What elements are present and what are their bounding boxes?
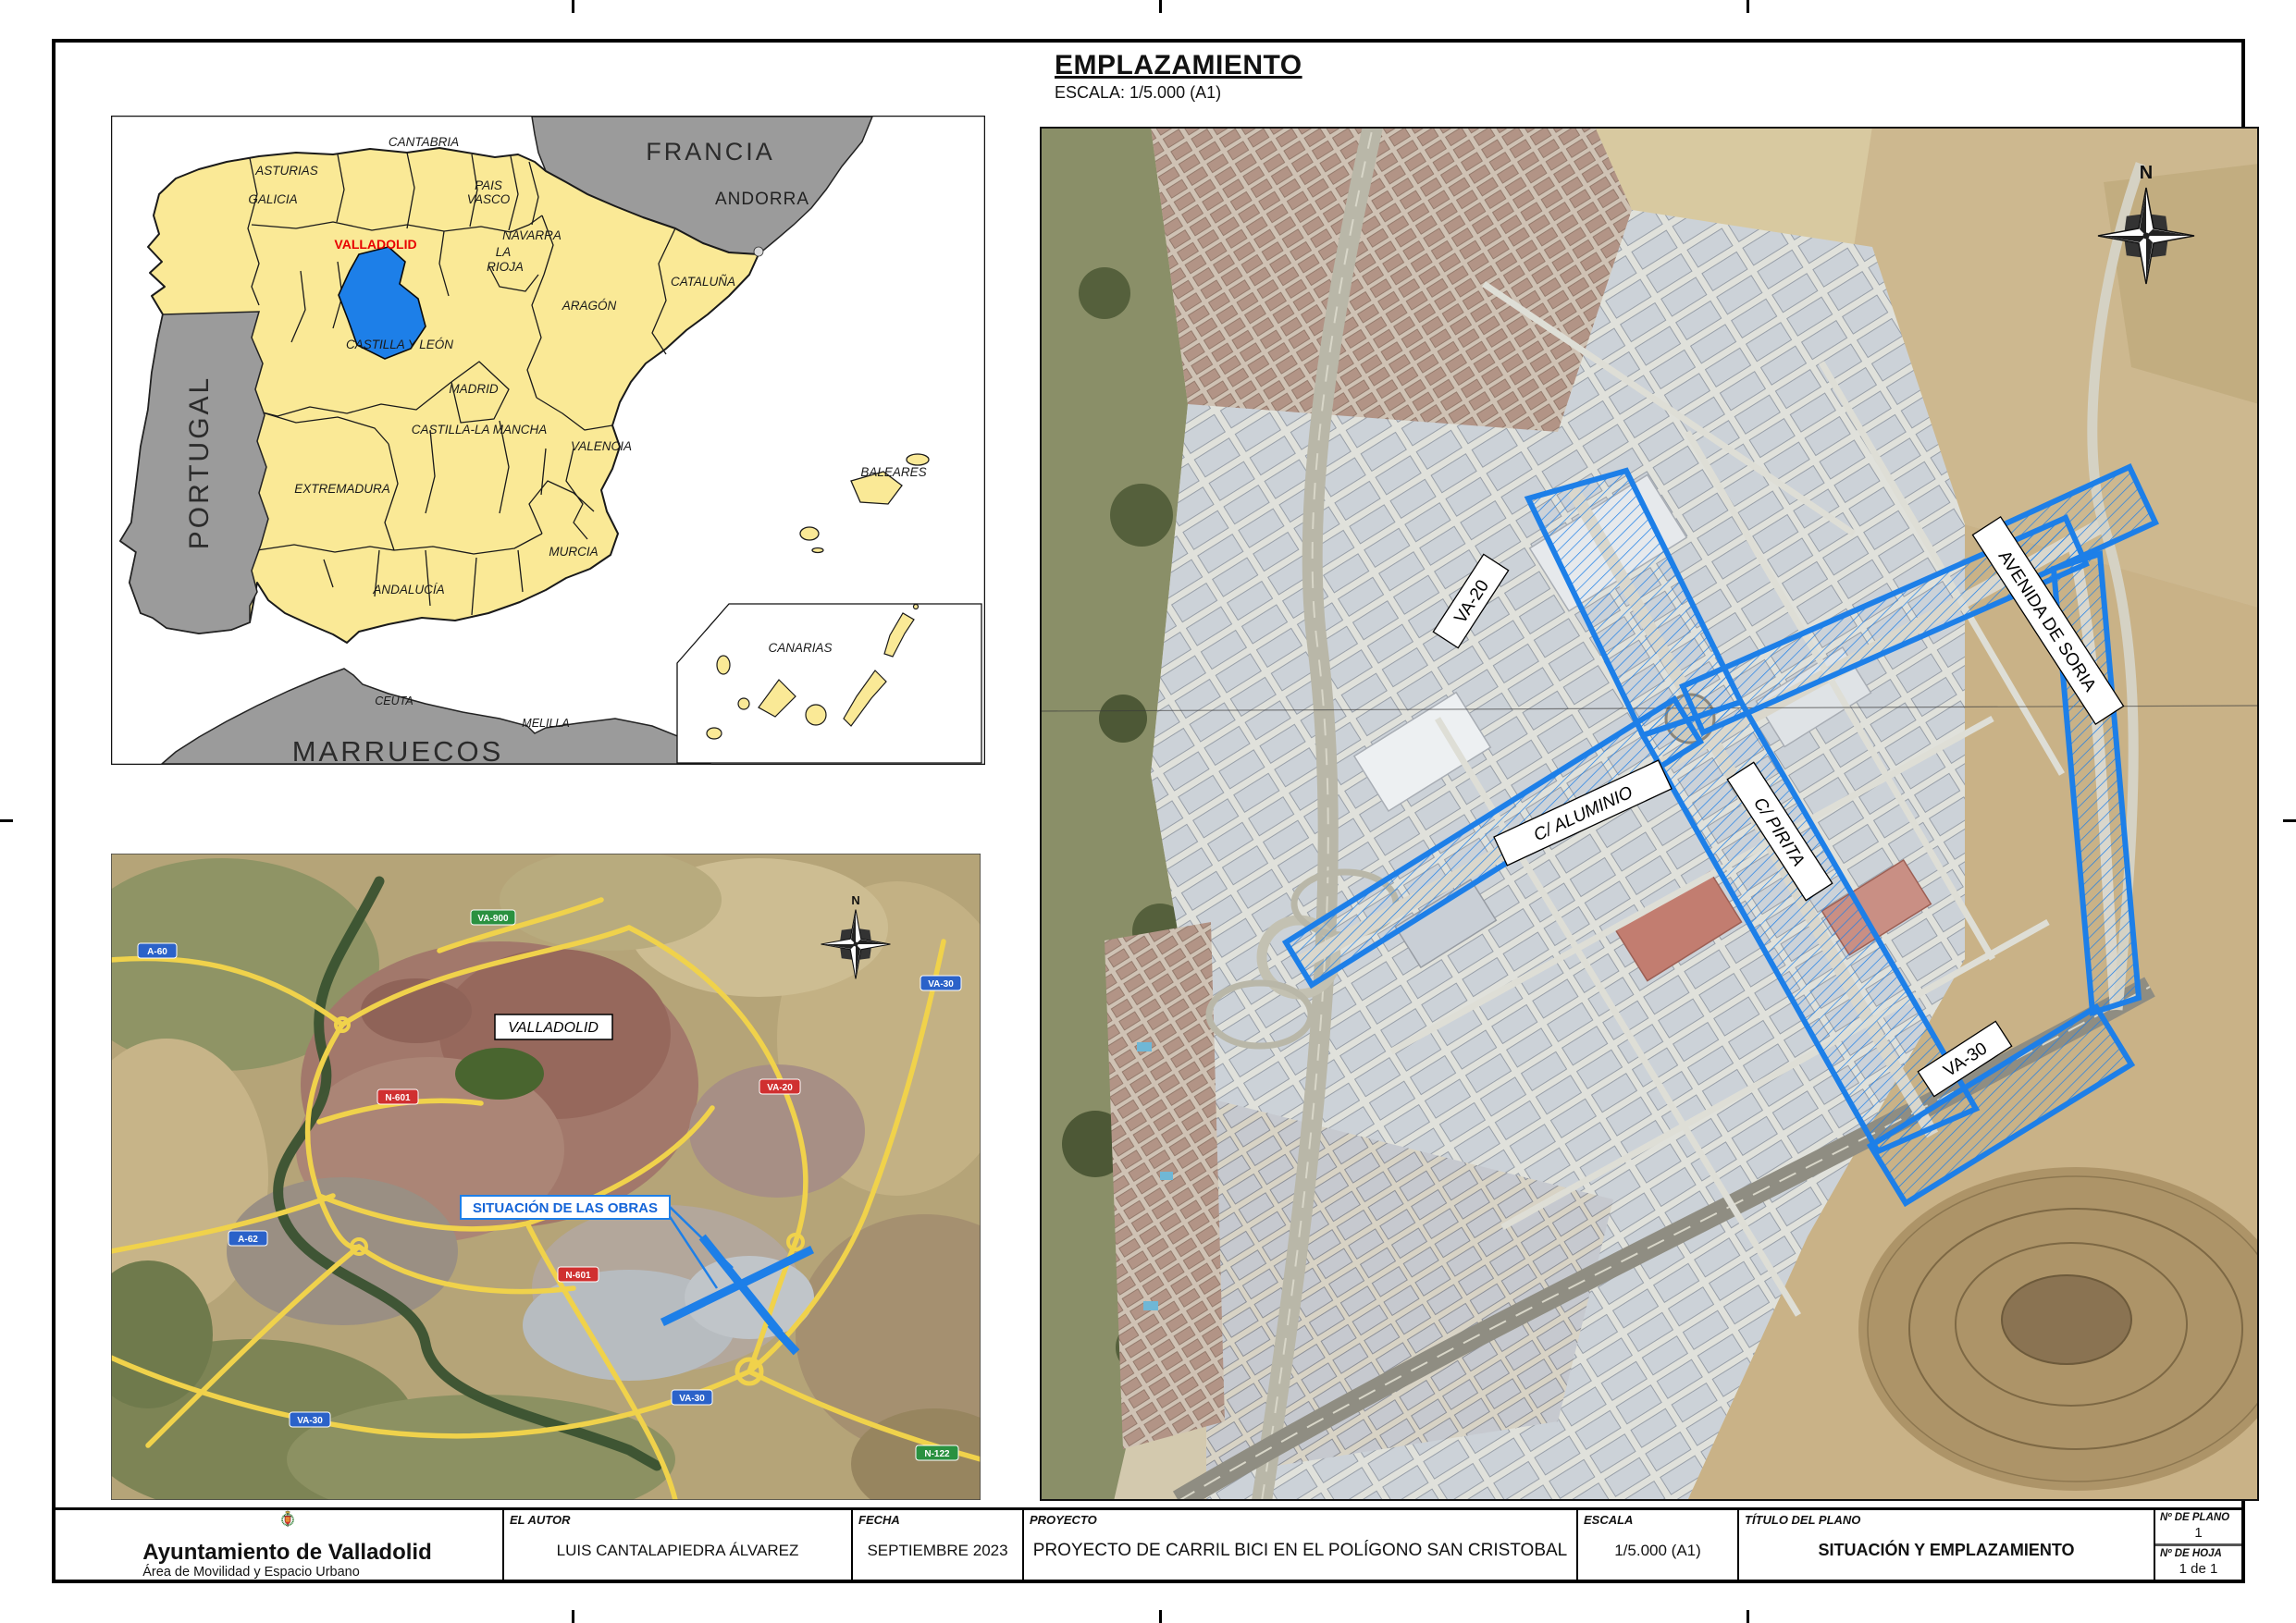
project-value: PROYECTO DE CARRIL BICI EN EL POLÍGONO S… bbox=[1024, 1527, 1576, 1580]
site-compass-n-label: N bbox=[2140, 163, 2153, 183]
label-madrid: MADRID bbox=[449, 382, 498, 396]
label-marruecos: MARRUECOS bbox=[292, 735, 504, 765]
scale-value: 1/5.000 (A1) bbox=[1578, 1527, 1737, 1580]
label-francia: FRANCIA bbox=[646, 138, 775, 166]
plan-title-label: TÍTULO DEL PLANO bbox=[1739, 1510, 2154, 1527]
cropmark-top-2 bbox=[1159, 0, 1162, 13]
road-shield-n601-b: N-601 bbox=[565, 1271, 591, 1281]
road-shield-va30-c: VA-30 bbox=[679, 1394, 705, 1404]
city-label: VALLADOLID bbox=[508, 1020, 599, 1036]
title-block-project-cell: PROYECTO PROYECTO DE CARRIL BICI EN EL P… bbox=[1022, 1510, 1576, 1580]
title-block-org-cell: Ayuntamiento de Valladolid Área de Movil… bbox=[56, 1510, 502, 1580]
canarias-inset-box bbox=[677, 604, 981, 763]
label-valladolid-province: VALLADOLID bbox=[334, 237, 416, 252]
scale-label: ESCALA bbox=[1578, 1510, 1737, 1527]
date-value: SEPTIEMBRE 2023 bbox=[853, 1527, 1022, 1580]
cropmark-bottom-2 bbox=[1159, 1610, 1162, 1623]
label-extremadura: EXTREMADURA bbox=[294, 482, 390, 496]
apartment-strip bbox=[1105, 922, 1225, 1449]
title-block-scale-cell: ESCALA 1/5.000 (A1) bbox=[1576, 1510, 1737, 1580]
road-shield-va900: VA-900 bbox=[477, 914, 509, 924]
plan-sheet: { "site_map": { "title": "EMPLAZAMIENTO"… bbox=[0, 0, 2296, 1623]
date-label: FECHA bbox=[853, 1510, 1022, 1527]
label-castilla-mancha: CASTILLA-LA MANCHA bbox=[412, 423, 548, 436]
cropmark-top-3 bbox=[1747, 0, 1749, 13]
road-shield-va30-a: VA-30 bbox=[928, 979, 954, 990]
plan-number-subcell: Nº DE PLANO 1 bbox=[2155, 1510, 2241, 1543]
city-compass-n-label: N bbox=[851, 893, 859, 907]
org-dept: Área de Movilidad y Espacio Urbano bbox=[142, 1565, 432, 1580]
label-vasco: VASCO bbox=[467, 192, 511, 206]
label-pais: PAIS bbox=[475, 178, 502, 192]
plan-no-label: Nº DE PLANO bbox=[2155, 1510, 2241, 1523]
road-shield-a60: A-60 bbox=[147, 947, 167, 957]
label-navarra: NAVARRA bbox=[502, 228, 562, 242]
emplazamiento-scale: ESCALA: 1/5.000 (A1) bbox=[1055, 83, 1302, 103]
title-block-numbers-cell: Nº DE PLANO 1 Nº DE HOJA 1 de 1 bbox=[2154, 1510, 2241, 1580]
emplazamiento-heading: EMPLAZAMIENTO ESCALA: 1/5.000 (A1) bbox=[1055, 50, 1302, 103]
cropmark-top-1 bbox=[572, 0, 574, 13]
spain-map: FRANCIA MARRUECOS PORTUGAL ANDORRA GALIC… bbox=[111, 116, 985, 765]
label-baleares: BALEARES bbox=[860, 465, 926, 479]
label-portugal: PORTUGAL bbox=[184, 375, 215, 550]
label-aragon: ARAGÓN bbox=[562, 299, 617, 313]
road-shield-n122: N-122 bbox=[924, 1449, 950, 1459]
works-label-box: SITUACIÓN DE LAS OBRAS bbox=[461, 1196, 670, 1219]
label-murcia: MURCIA bbox=[549, 545, 598, 559]
label-rioja: RIOJA bbox=[487, 260, 524, 274]
label-castilla-leon: CASTILLA Y LEÓN bbox=[346, 338, 453, 351]
label-ceuta: CEUTA bbox=[375, 695, 413, 707]
label-cataluna: CATALUÑA bbox=[671, 275, 735, 289]
title-block: Ayuntamiento de Valladolid Área de Movil… bbox=[56, 1507, 2241, 1580]
org-name: Ayuntamiento de Valladolid bbox=[142, 1541, 432, 1565]
city-satellite-map: VALLADOLID SITUACIÓN DE LAS OBRAS A-60 V… bbox=[111, 854, 981, 1500]
author-label: EL AUTOR bbox=[504, 1510, 851, 1527]
label-andalucia: ANDALUCÍA bbox=[372, 583, 444, 596]
label-andorra: ANDORRA bbox=[715, 190, 809, 209]
label-la: LA bbox=[496, 245, 512, 259]
cropmark-bottom-3 bbox=[1747, 1610, 1749, 1623]
cropmark-bottom-1 bbox=[572, 1610, 574, 1623]
sheet-no-value: 1 de 1 bbox=[2155, 1559, 2241, 1580]
city-label-box: VALLADOLID bbox=[495, 1014, 612, 1039]
author-value: LUIS CANTALAPIEDRA ÁLVAREZ bbox=[504, 1527, 851, 1580]
plan-no-value: 1 bbox=[2155, 1523, 2241, 1543]
label-valencia: VALENCIA bbox=[571, 439, 632, 453]
sheet-frame: EMPLAZAMIENTO ESCALA: 1/5.000 (A1) bbox=[52, 39, 2245, 1583]
plan-title-value: SITUACIÓN Y EMPLAZAMIENTO bbox=[1739, 1527, 2154, 1580]
cropmark-right bbox=[2283, 819, 2296, 822]
title-block-plantitle-cell: TÍTULO DEL PLANO SITUACIÓN Y EMPLAZAMIEN… bbox=[1737, 1510, 2154, 1580]
valladolid-coat-of-arms bbox=[259, 1510, 316, 1528]
sheet-no-label: Nº DE HOJA bbox=[2155, 1546, 2241, 1559]
site-aerial-map: VA-20 C/ ALUMINIO C/ PIRITA AVENIDA DE S… bbox=[1040, 127, 2259, 1501]
road-shield-n601-a: N-601 bbox=[385, 1093, 411, 1103]
label-cantabria: CANTABRIA bbox=[389, 135, 459, 149]
cropmark-left bbox=[0, 819, 13, 822]
country-andorra-shape bbox=[754, 247, 763, 256]
label-canarias: CANARIAS bbox=[768, 641, 832, 655]
sheet-number-subcell: Nº DE HOJA 1 de 1 bbox=[2155, 1543, 2241, 1580]
title-block-date-cell: FECHA SEPTIEMBRE 2023 bbox=[851, 1510, 1022, 1580]
label-melilla: MELILLA bbox=[522, 717, 569, 730]
label-asturias: ASTURIAS bbox=[254, 164, 318, 178]
road-shield-a62: A-62 bbox=[238, 1235, 258, 1245]
road-shield-va30-b: VA-30 bbox=[297, 1416, 323, 1426]
emplazamiento-title: EMPLAZAMIENTO bbox=[1055, 50, 1302, 81]
project-label: PROYECTO bbox=[1024, 1510, 1576, 1527]
label-galicia: GALICIA bbox=[248, 192, 297, 206]
road-shield-va20: VA-20 bbox=[767, 1083, 793, 1093]
title-block-author-cell: EL AUTOR LUIS CANTALAPIEDRA ÁLVAREZ bbox=[502, 1510, 851, 1580]
works-label: SITUACIÓN DE LAS OBRAS bbox=[473, 1199, 658, 1216]
